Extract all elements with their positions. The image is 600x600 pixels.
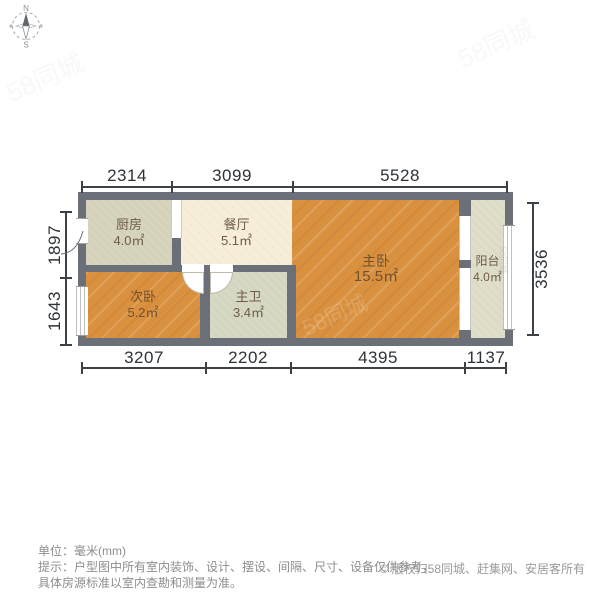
dimension-line-top xyxy=(82,186,508,188)
dim-left-2: 1643 xyxy=(45,291,65,331)
dimension-tick xyxy=(60,211,72,213)
dim-bottom-2: 2202 xyxy=(228,348,268,368)
compass-south-label: S xyxy=(23,41,28,49)
compass-icon: N S xyxy=(4,2,48,48)
dim-top-3: 5528 xyxy=(380,166,420,186)
dim-bottom-1: 3207 xyxy=(124,348,164,368)
second-bedroom-window xyxy=(76,286,88,336)
dimension-tick xyxy=(60,277,72,279)
dimension-tick xyxy=(81,181,83,193)
unit-note: 单位：毫米(mm) xyxy=(38,543,434,559)
dimension-tick xyxy=(527,202,539,204)
dimension-tick xyxy=(505,362,507,374)
dim-top-1: 2314 xyxy=(107,166,147,186)
dimension-leader-line xyxy=(60,228,88,256)
tip-line-2: 具体房源标准以室内查勘和测量为准。 xyxy=(38,575,434,591)
dimension-tick xyxy=(292,181,294,193)
dimension-tick xyxy=(171,181,173,193)
dim-bottom-3: 4395 xyxy=(358,348,398,368)
dimension-tick xyxy=(506,181,508,193)
dimension-tick xyxy=(205,362,207,374)
watermark: 58同城 xyxy=(451,9,540,76)
dimension-tick xyxy=(464,362,466,374)
floor-plan: 厨房 4.0㎡ 餐厅 5.1㎡ 主卧 15.5㎡ 阳台 4.0㎡ 次卧 5.2㎡… xyxy=(78,192,513,346)
compass-north-label: N xyxy=(23,4,29,13)
dimension-tick xyxy=(60,344,72,346)
footer-notes: 单位：毫米(mm) 提示：户型图中所有室内装饰、设计、摆设、间隔、尺寸、设备仅供… xyxy=(38,543,434,591)
exterior-wall xyxy=(78,192,513,346)
watermark: 58同城 xyxy=(0,43,89,110)
balcony-window xyxy=(503,225,515,330)
tip-line-1: 提示：户型图中所有室内装饰、设计、摆设、间隔、尺寸、设备仅供参考， xyxy=(38,559,434,575)
dim-right-1: 3536 xyxy=(532,249,552,289)
dimension-tick xyxy=(527,334,539,336)
floor-plan-page: N S 58同城 58同城 58同城 58同城 厨房 4.0㎡ 餐厅 5.1㎡ … xyxy=(0,0,600,600)
dim-top-2: 3099 xyxy=(212,166,252,186)
dimension-tick xyxy=(290,362,292,374)
dim-bottom-4: 1137 xyxy=(467,348,506,368)
dimension-tick xyxy=(81,362,83,374)
copyright-text: © 版权归58同城、赶集网、安居客所有 xyxy=(379,560,585,577)
